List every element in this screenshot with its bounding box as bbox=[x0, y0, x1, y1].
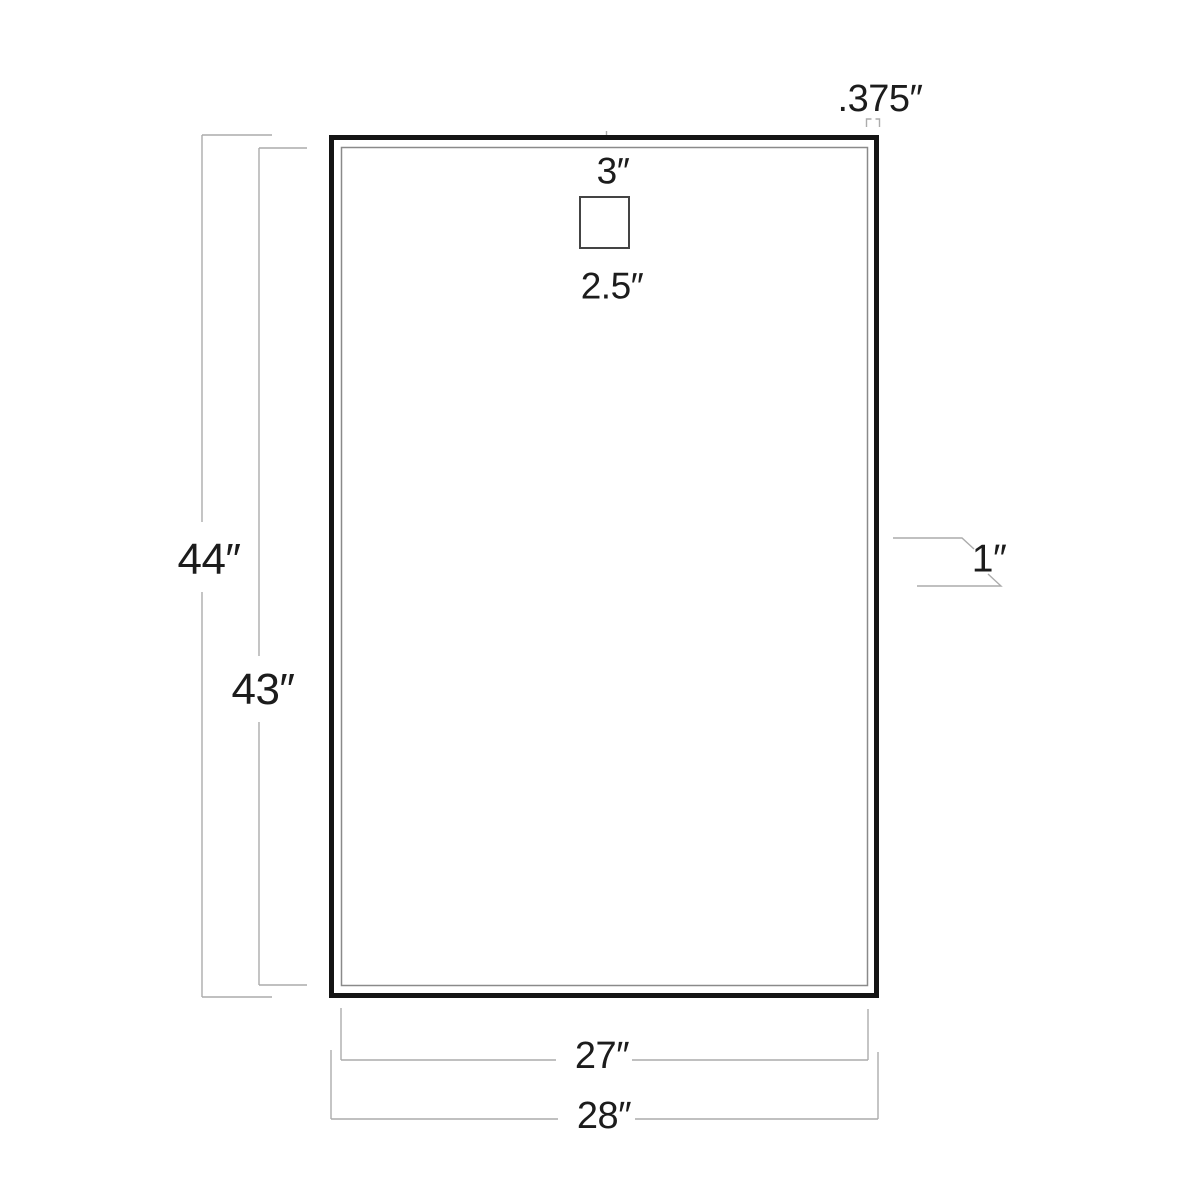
label-bracket-offset-top: 3″ bbox=[597, 153, 630, 190]
label-frame-face-width: .375″ bbox=[838, 80, 923, 118]
dim-375-bracket-left bbox=[867, 119, 872, 127]
label-overall-height: 44″ bbox=[177, 538, 240, 582]
label-inner-width: 27″ bbox=[575, 1037, 629, 1075]
label-overall-width: 28″ bbox=[577, 1097, 631, 1135]
label-inner-height: 43″ bbox=[231, 668, 294, 712]
label-frame-depth: 1″ bbox=[972, 540, 1007, 579]
dim-375-bracket-right bbox=[876, 119, 880, 127]
dimension-diagram: .375″ 3″ 2.5″ 44″ 43″ 1″ 27″ 28″ bbox=[0, 0, 1200, 1200]
mounting-bracket bbox=[580, 197, 629, 248]
label-bracket-width: 2.5″ bbox=[581, 268, 644, 305]
dim-1-leader-top bbox=[893, 538, 974, 549]
